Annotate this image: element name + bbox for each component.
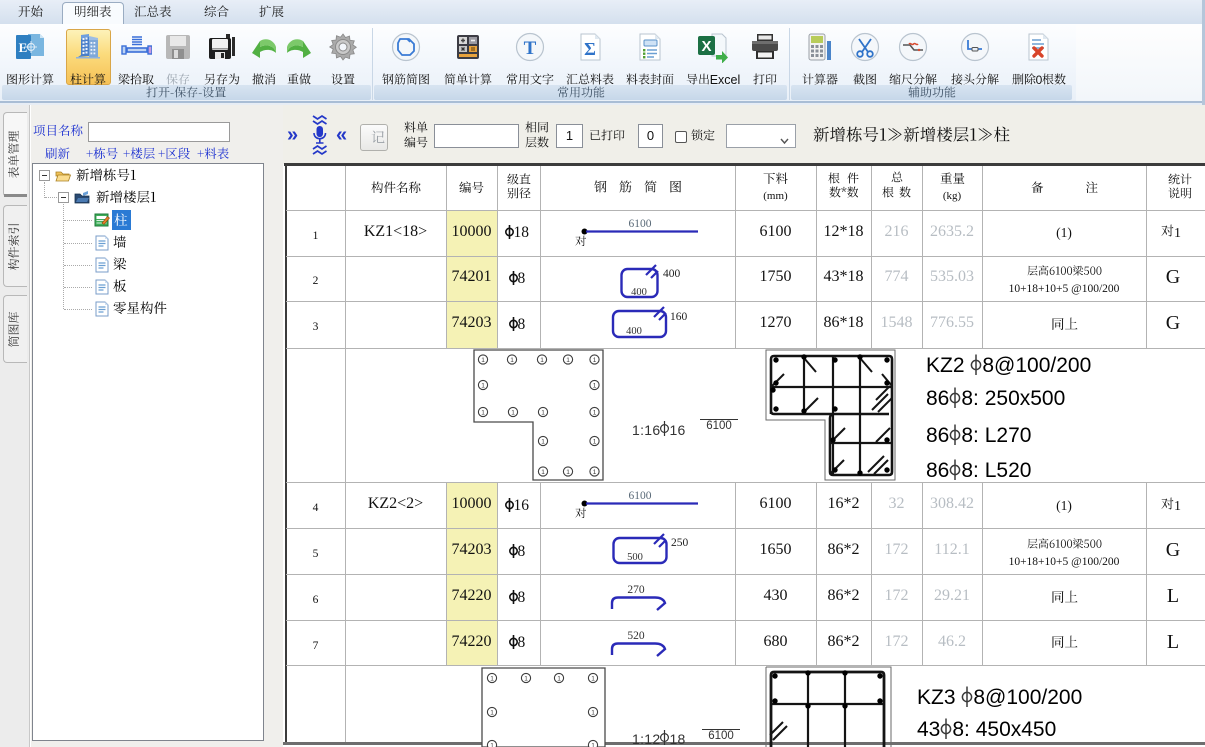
- svg-text:250: 250: [671, 537, 689, 549]
- svg-text:400: 400: [663, 268, 681, 280]
- svg-text:160: 160: [670, 311, 688, 323]
- svg-text:1: 1: [481, 409, 485, 416]
- svg-text:1: 1: [541, 469, 545, 476]
- svg-text:1: 1: [591, 742, 595, 747]
- svg-text:1: 1: [511, 409, 515, 416]
- svg-text:T: T: [524, 38, 537, 59]
- svg-text:1: 1: [557, 675, 561, 682]
- svg-text:1: 1: [541, 438, 545, 445]
- svg-text:1: 1: [481, 382, 485, 389]
- svg-text:1: 1: [524, 675, 528, 682]
- svg-text:1: 1: [490, 675, 494, 682]
- svg-text:1: 1: [593, 469, 597, 476]
- svg-text:1: 1: [566, 357, 570, 364]
- svg-text:1: 1: [490, 709, 494, 716]
- svg-text:1: 1: [593, 409, 597, 416]
- svg-text:6100: 6100: [629, 218, 652, 230]
- svg-text:270: 270: [627, 584, 645, 596]
- svg-text:400: 400: [626, 326, 642, 337]
- svg-text:1: 1: [510, 357, 514, 364]
- svg-text:500: 500: [627, 552, 643, 563]
- svg-text:1: 1: [593, 357, 597, 364]
- svg-text:1: 1: [593, 382, 597, 389]
- svg-text:520: 520: [627, 630, 645, 642]
- svg-text:1: 1: [566, 469, 570, 476]
- svg-text:1: 1: [541, 409, 545, 416]
- svg-text:1: 1: [593, 438, 597, 445]
- svg-text:Σ: Σ: [584, 39, 596, 59]
- svg-text:400: 400: [631, 287, 647, 298]
- svg-text:1: 1: [481, 357, 485, 364]
- svg-text:1: 1: [591, 709, 595, 716]
- svg-text:1: 1: [490, 742, 494, 747]
- svg-text:6100: 6100: [629, 490, 652, 502]
- svg-text:1: 1: [591, 675, 595, 682]
- svg-text:X: X: [701, 38, 711, 55]
- svg-text:1: 1: [540, 357, 544, 364]
